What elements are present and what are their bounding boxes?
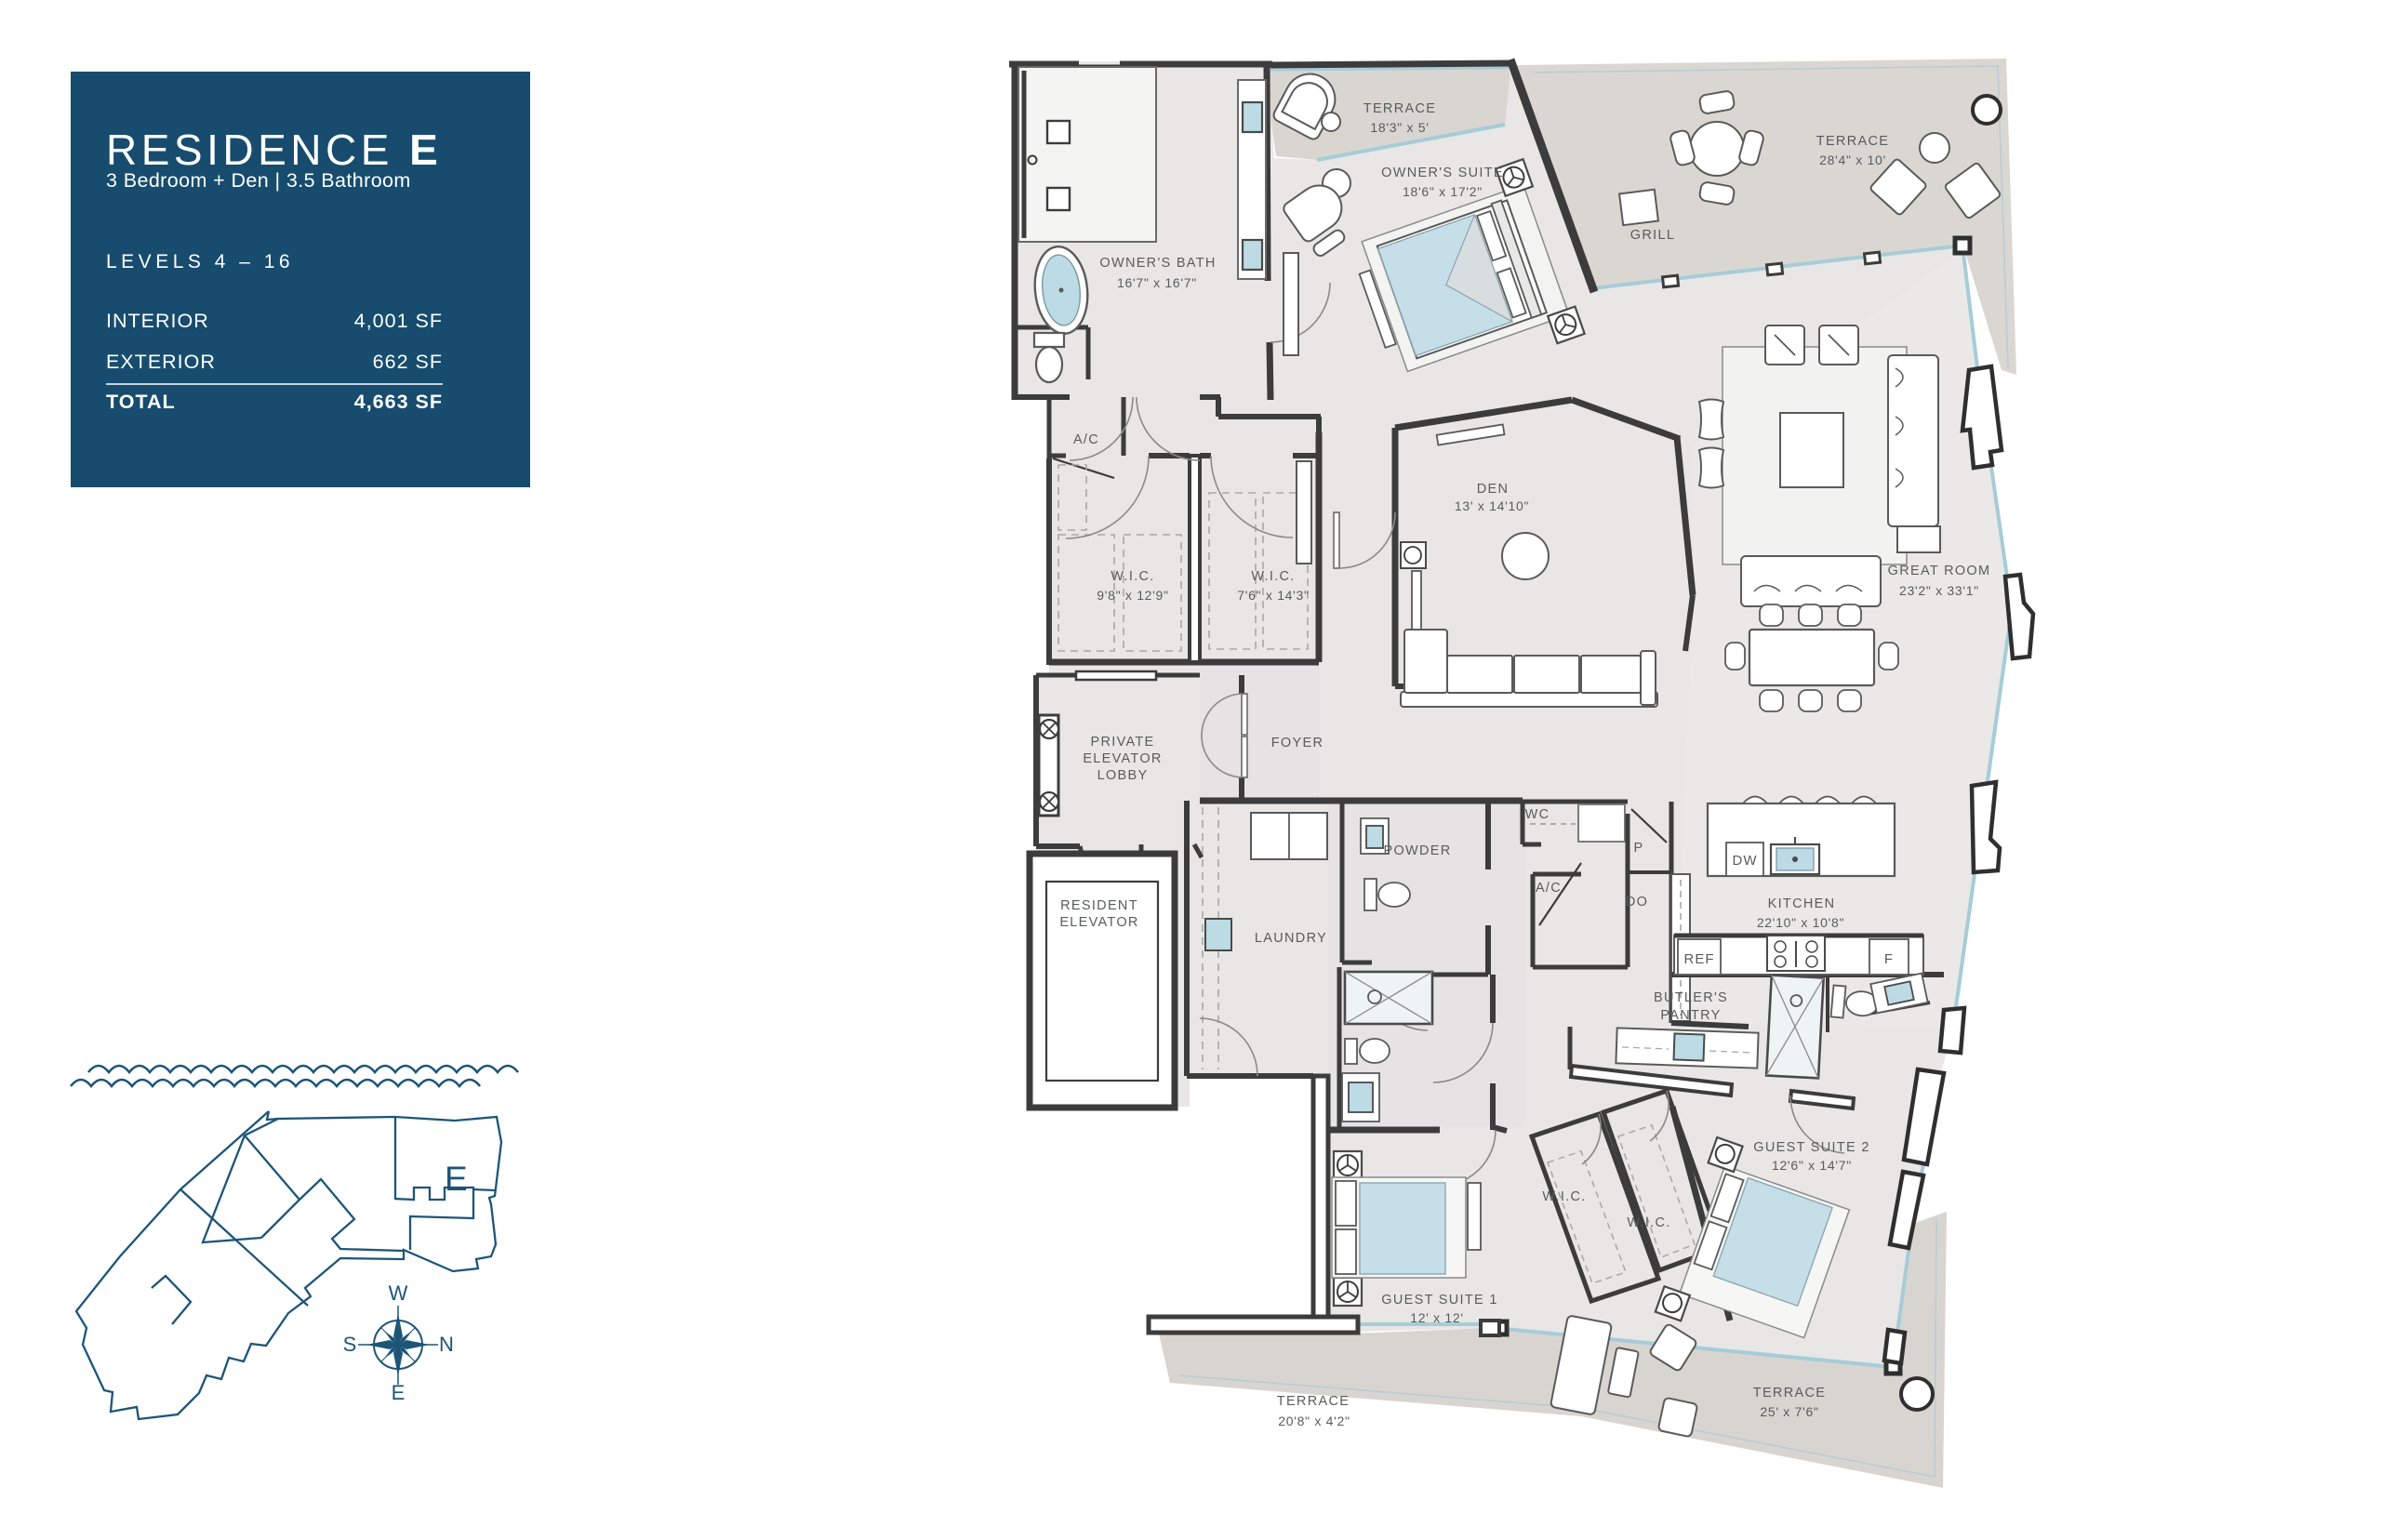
- svg-text:LAUNDRY: LAUNDRY: [1255, 931, 1327, 946]
- svg-text:662 SF: 662 SF: [373, 351, 443, 373]
- svg-text:INTERIOR: INTERIOR: [106, 310, 209, 332]
- svg-text:E: E: [445, 1160, 468, 1198]
- svg-text:DO: DO: [1626, 895, 1648, 909]
- svg-text:OWNER'S SUITE: OWNER'S SUITE: [1381, 166, 1504, 180]
- svg-text:DW: DW: [1733, 853, 1758, 869]
- svg-text:18'6" x 17'2": 18'6" x 17'2": [1403, 184, 1483, 199]
- svg-text:20'8" x 4'2": 20'8" x 4'2": [1278, 1414, 1350, 1428]
- svg-text:PRIVATE: PRIVATE: [1091, 735, 1155, 750]
- svg-text:A/C: A/C: [1073, 432, 1099, 447]
- svg-text:GUEST SUITE 1: GUEST SUITE 1: [1381, 1293, 1497, 1308]
- svg-text:KITCHEN: KITCHEN: [1768, 896, 1836, 911]
- svg-text:N: N: [439, 1333, 454, 1356]
- svg-text:TERRACE: TERRACE: [1816, 134, 1889, 149]
- svg-text:DEN: DEN: [1477, 482, 1510, 497]
- svg-text:4,663 SF: 4,663 SF: [354, 391, 443, 413]
- svg-text:23'2" x 33'1": 23'2" x 33'1": [1899, 583, 1979, 598]
- svg-text:RESIDENT: RESIDENT: [1060, 898, 1138, 913]
- svg-text:OWNER'S BATH: OWNER'S BATH: [1099, 256, 1216, 271]
- svg-text:A/C: A/C: [1536, 881, 1562, 896]
- svg-text:12'6" x 14'7": 12'6" x 14'7": [1772, 1158, 1852, 1173]
- svg-text:GRILL: GRILL: [1630, 228, 1675, 243]
- svg-text:RESIDENCE E: RESIDENCE E: [106, 126, 442, 174]
- svg-text:W: W: [389, 1281, 408, 1305]
- svg-text:25' x 7'6": 25' x 7'6": [1760, 1404, 1818, 1419]
- svg-text:F: F: [1884, 951, 1894, 967]
- svg-text:GREAT ROOM: GREAT ROOM: [1888, 564, 1991, 578]
- svg-text:WC: WC: [1525, 807, 1550, 822]
- svg-text:POWDER: POWDER: [1383, 843, 1451, 858]
- svg-text:TERRACE: TERRACE: [1753, 1386, 1826, 1401]
- svg-text:GUEST SUITE 2: GUEST SUITE 2: [1753, 1140, 1869, 1155]
- svg-text:ELEVATOR: ELEVATOR: [1059, 915, 1138, 930]
- svg-text:P: P: [1634, 841, 1644, 856]
- svg-text:EXTERIOR: EXTERIOR: [106, 351, 216, 373]
- svg-text:3 Bedroom + Den | 3.5 Bathroom: 3 Bedroom + Den | 3.5 Bathroom: [106, 169, 411, 192]
- svg-text:W.I.C.: W.I.C.: [1627, 1215, 1670, 1230]
- svg-text:12' x 12': 12' x 12': [1410, 1310, 1464, 1325]
- svg-text:13' x 14'10": 13' x 14'10": [1455, 498, 1529, 513]
- svg-text:TOTAL: TOTAL: [106, 391, 176, 413]
- svg-text:FOYER: FOYER: [1271, 736, 1324, 750]
- svg-text:W.I.C.: W.I.C.: [1251, 569, 1295, 584]
- svg-text:ELEVATOR: ELEVATOR: [1083, 751, 1162, 766]
- svg-text:LEVELS 4 – 16: LEVELS 4 – 16: [106, 251, 294, 272]
- svg-text:28'4" x 10': 28'4" x 10': [1819, 153, 1886, 167]
- svg-text:REF: REF: [1684, 951, 1715, 967]
- svg-text:LOBBY: LOBBY: [1097, 768, 1149, 783]
- svg-text:E: E: [392, 1381, 406, 1404]
- svg-text:W.I.C.: W.I.C.: [1542, 1189, 1586, 1204]
- svg-text:TERRACE: TERRACE: [1277, 1394, 1350, 1409]
- svg-text:22'10" x 10'8": 22'10" x 10'8": [1757, 915, 1844, 930]
- svg-text:9'8" x 12'9": 9'8" x 12'9": [1097, 588, 1168, 603]
- svg-text:4,001 SF: 4,001 SF: [354, 310, 443, 332]
- svg-text:PANTRY: PANTRY: [1660, 1008, 1721, 1023]
- svg-text:TERRACE: TERRACE: [1363, 101, 1436, 116]
- svg-text:7'6" x 14'3": 7'6" x 14'3": [1237, 588, 1309, 603]
- svg-text:S: S: [343, 1333, 357, 1356]
- svg-text:W.I.C.: W.I.C.: [1111, 569, 1154, 584]
- svg-text:16'7" x 16'7": 16'7" x 16'7": [1117, 275, 1197, 290]
- svg-text:BUTLER'S: BUTLER'S: [1654, 990, 1728, 1005]
- svg-text:18'3" x 5': 18'3" x 5': [1370, 120, 1429, 135]
